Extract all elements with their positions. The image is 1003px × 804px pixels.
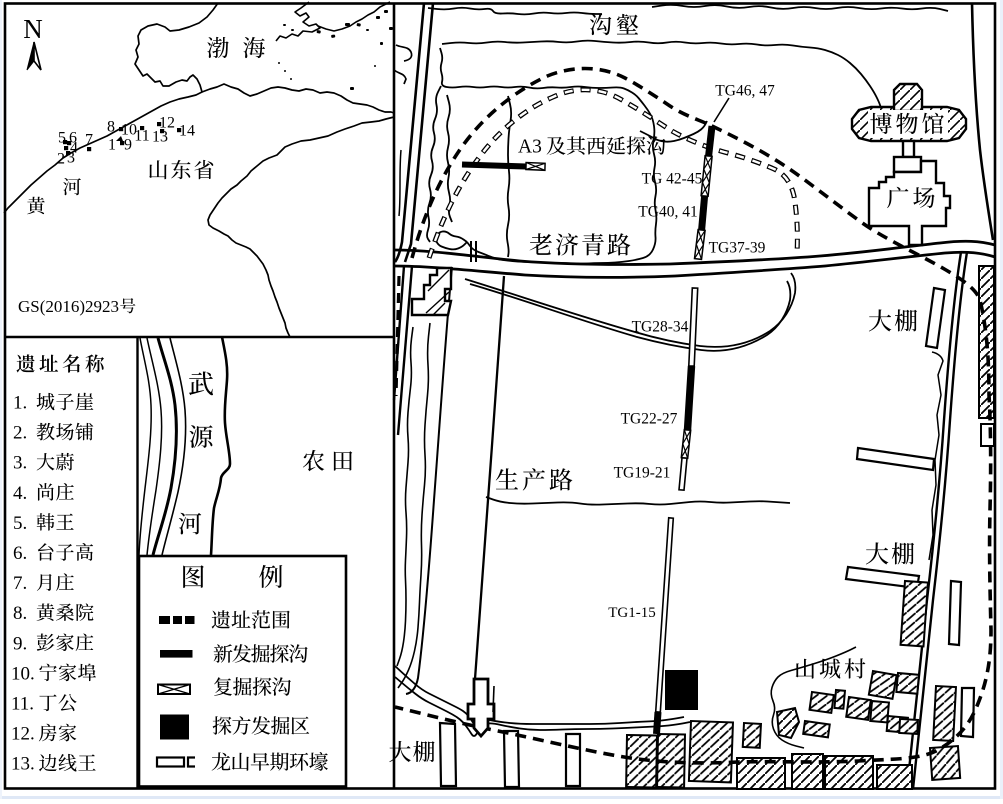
svg-text:3: 3 <box>67 149 75 166</box>
svg-text:1.: 1. <box>13 393 27 414</box>
svg-text:11.: 11. <box>11 694 34 715</box>
svg-text:13.: 13. <box>11 754 35 775</box>
svg-text:A3: A3 <box>518 137 542 158</box>
svg-text:8.: 8. <box>13 603 27 624</box>
svg-text:2.: 2. <box>13 423 27 444</box>
svg-text:6.: 6. <box>13 543 27 564</box>
svg-text:TG19-21: TG19-21 <box>614 464 671 481</box>
svg-text:3.: 3. <box>13 453 27 474</box>
svg-text:TG46, 47: TG46, 47 <box>715 82 775 99</box>
svg-text:N: N <box>23 14 43 44</box>
svg-text:TG37-39: TG37-39 <box>709 239 766 256</box>
svg-text:13: 13 <box>152 128 168 145</box>
svg-text:7: 7 <box>85 131 93 148</box>
svg-text:12.: 12. <box>11 724 35 745</box>
svg-text:11: 11 <box>134 127 149 144</box>
svg-text:GS(2016)2923: GS(2016)2923 <box>18 297 119 316</box>
svg-text:TG28-34: TG28-34 <box>632 318 689 335</box>
svg-text:TG22-27: TG22-27 <box>621 410 678 427</box>
svg-text:1: 1 <box>108 136 116 153</box>
svg-text:TG 42-45: TG 42-45 <box>642 170 703 187</box>
svg-text:TG40, 41: TG40, 41 <box>638 203 697 220</box>
svg-text:10.: 10. <box>11 663 35 684</box>
svg-text:7.: 7. <box>13 573 27 594</box>
svg-text:2: 2 <box>57 150 65 167</box>
svg-text:14: 14 <box>179 122 195 139</box>
svg-text:TG1-15: TG1-15 <box>608 605 656 621</box>
svg-text:8: 8 <box>107 118 115 135</box>
svg-text:4.: 4. <box>13 483 27 504</box>
svg-text:9.: 9. <box>13 633 27 654</box>
svg-text:9: 9 <box>124 136 132 153</box>
svg-text:5.: 5. <box>13 513 27 534</box>
svg-text:5: 5 <box>58 129 66 146</box>
